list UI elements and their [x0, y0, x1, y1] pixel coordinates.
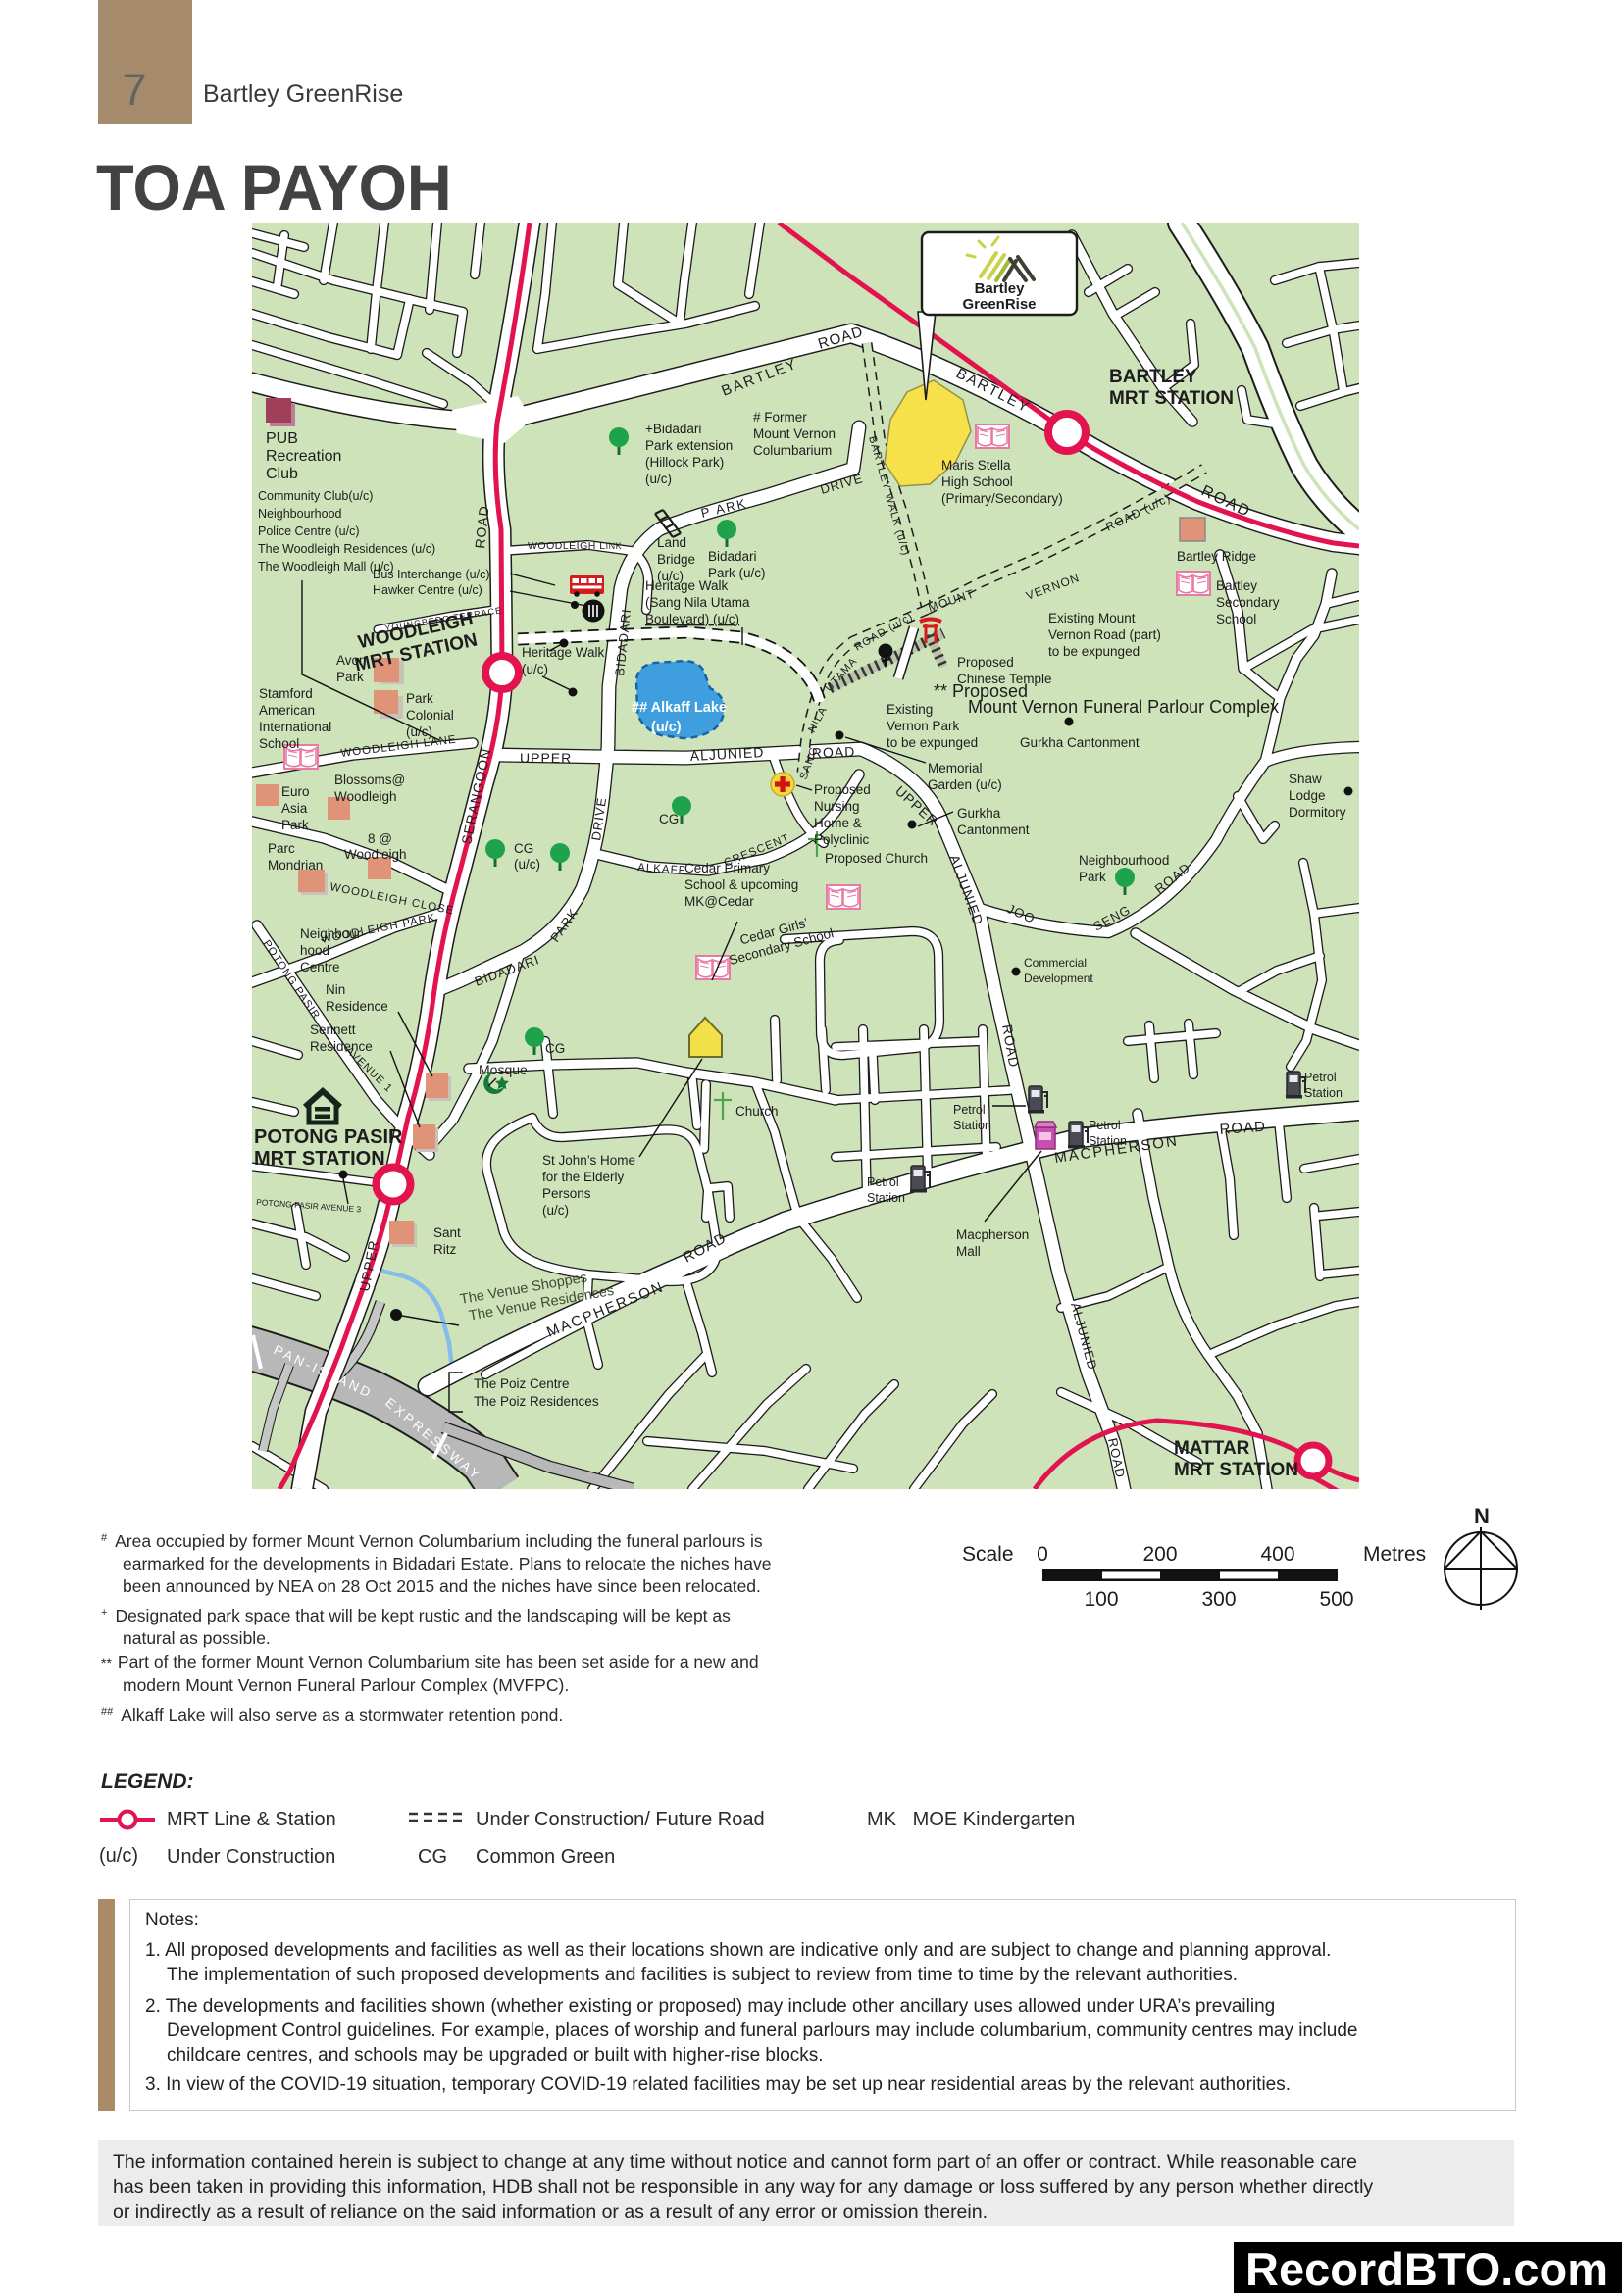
svg-text:Mount Vernon: Mount Vernon — [753, 426, 836, 441]
svg-text:Sennett: Sennett — [310, 1023, 356, 1037]
svg-text:N: N — [1474, 1504, 1490, 1528]
svg-text:Club: Club — [266, 466, 298, 482]
svg-text:Euro: Euro — [281, 784, 310, 799]
svg-text:Macpherson: Macpherson — [956, 1227, 1029, 1242]
svg-text:Dormitory: Dormitory — [1289, 805, 1346, 820]
svg-text:(Hillock Park): (Hillock Park) — [645, 455, 724, 470]
svg-text:MRT STATION: MRT STATION — [254, 1148, 385, 1170]
svg-text:Church: Church — [735, 1104, 779, 1119]
svg-text:PUB: PUB — [266, 430, 298, 447]
svg-text:Home &: Home & — [814, 816, 862, 830]
svg-text:Asia: Asia — [281, 801, 308, 816]
svg-text:Bridge: Bridge — [657, 552, 695, 567]
svg-text:Bartley: Bartley — [975, 280, 1026, 297]
svg-text:Columbarium: Columbarium — [753, 443, 832, 458]
svg-text:(u/c): (u/c) — [514, 857, 540, 872]
svg-text:Hawker Centre (u/c): Hawker Centre (u/c) — [373, 583, 482, 597]
svg-text:Boulevard) (u/c): Boulevard) (u/c) — [645, 612, 739, 626]
svg-text:Station: Station — [1304, 1086, 1343, 1100]
svg-text:Colonial: Colonial — [406, 708, 454, 723]
svg-text:Recreation: Recreation — [266, 448, 341, 465]
svg-text:Residence: Residence — [326, 999, 388, 1014]
svg-text:Development: Development — [1024, 972, 1093, 985]
svg-text:High School: High School — [941, 474, 1013, 489]
svg-text:Cedar Primary: Cedar Primary — [684, 861, 770, 875]
svg-text:400: 400 — [1260, 1543, 1294, 1566]
svg-text:WOODLEIGH LINK: WOODLEIGH LINK — [528, 540, 622, 552]
svg-text:MRT STATION: MRT STATION — [1109, 388, 1234, 409]
svg-text:Heritage Walk: Heritage Walk — [522, 645, 605, 660]
svg-text:Lodge: Lodge — [1289, 788, 1326, 803]
svg-text:+Bidadari: +Bidadari — [645, 422, 701, 436]
svg-text:Station: Station — [1089, 1134, 1127, 1148]
svg-text:Bidadari: Bidadari — [708, 549, 757, 564]
svg-text:Petrol: Petrol — [1089, 1119, 1121, 1132]
svg-text:Polyclinic: Polyclinic — [814, 832, 870, 847]
svg-text:CG: CG — [545, 1041, 565, 1056]
svg-text:to be expunged: to be expunged — [887, 735, 978, 750]
svg-text:200: 200 — [1142, 1543, 1177, 1566]
svg-text:The Woodleigh Residences (u/c): The Woodleigh Residences (u/c) — [258, 542, 435, 556]
svg-text:8 @: 8 @ — [368, 831, 392, 846]
svg-text:School: School — [1216, 612, 1256, 626]
svg-text:Vernon Road (part): Vernon Road (part) — [1048, 627, 1161, 642]
svg-text:Heritage Walk: Heritage Walk — [645, 578, 729, 593]
svg-text:St John’s Home: St John’s Home — [542, 1153, 635, 1168]
svg-text:MK@Cedar: MK@Cedar — [684, 894, 754, 909]
svg-text:100: 100 — [1084, 1588, 1118, 1611]
svg-text:Cantonment: Cantonment — [957, 823, 1030, 837]
svg-text:School & upcoming: School & upcoming — [684, 877, 798, 892]
svg-text:The Poiz Residences: The Poiz Residences — [474, 1394, 599, 1409]
svg-text:300: 300 — [1201, 1588, 1236, 1611]
svg-text:ROAD: ROAD — [812, 743, 856, 761]
svg-text:CG: CG — [514, 841, 533, 856]
svg-text:Shaw: Shaw — [1289, 772, 1322, 786]
svg-text:Avon: Avon — [336, 653, 367, 668]
svg-text:Mount Vernon Funeral Parlour C: Mount Vernon Funeral Parlour Complex — [968, 697, 1279, 717]
svg-text:American: American — [259, 703, 315, 718]
svg-text:Station: Station — [953, 1119, 991, 1132]
svg-text:Garden (u/c): Garden (u/c) — [928, 777, 1002, 792]
svg-text:Commercial: Commercial — [1024, 956, 1087, 970]
svg-text:MATTAR: MATTAR — [1174, 1438, 1250, 1459]
svg-text:Bus Interchange (u/c): Bus Interchange (u/c) — [373, 568, 490, 581]
svg-text:UPPER: UPPER — [520, 750, 572, 766]
svg-text:Ritz: Ritz — [433, 1242, 456, 1257]
svg-text:MRT STATION: MRT STATION — [1174, 1460, 1298, 1480]
svg-text:Nursing: Nursing — [814, 799, 860, 814]
svg-text:(u/c): (u/c) — [522, 662, 548, 676]
svg-text:Mosque: Mosque — [479, 1062, 528, 1077]
svg-text:Park: Park — [1079, 870, 1106, 884]
svg-text:Woodleigh: Woodleigh — [344, 847, 407, 862]
svg-text:Maris Stella: Maris Stella — [941, 458, 1011, 473]
svg-text:(u/c): (u/c) — [645, 472, 672, 486]
svg-text:Proposed: Proposed — [814, 782, 871, 797]
svg-text:BARTLEY: BARTLEY — [1109, 367, 1197, 387]
svg-text:Proposed Church: Proposed Church — [825, 851, 928, 866]
svg-text:CG: CG — [659, 812, 679, 826]
svg-text:Persons: Persons — [542, 1186, 591, 1201]
svg-text:Station: Station — [867, 1191, 905, 1205]
svg-text:Petrol: Petrol — [1304, 1071, 1337, 1084]
svg-text:(u/c): (u/c) — [651, 720, 682, 735]
svg-text:Blossoms@: Blossoms@ — [334, 773, 405, 787]
svg-text:Park: Park — [336, 670, 364, 684]
svg-text:Existing Mount: Existing Mount — [1048, 611, 1136, 625]
svg-text:Bartley Ridge: Bartley Ridge — [1177, 549, 1256, 564]
svg-text:POTONG PASIR: POTONG PASIR — [254, 1126, 403, 1148]
svg-text:The Poiz Centre: The Poiz Centre — [474, 1376, 570, 1391]
svg-text:500: 500 — [1319, 1588, 1353, 1611]
svg-text:Nin: Nin — [326, 982, 345, 997]
svg-text:# Former: # Former — [753, 410, 807, 424]
svg-text:hood: hood — [300, 943, 329, 958]
svg-text:(Primary/Secondary): (Primary/Secondary) — [941, 491, 1063, 506]
svg-text:Mall: Mall — [956, 1244, 981, 1259]
svg-text:(Sang Nila Utama: (Sang Nila Utama — [645, 595, 750, 610]
svg-text:Police Centre (u/c): Police Centre (u/c) — [258, 524, 360, 538]
svg-text:Park extension: Park extension — [645, 438, 733, 453]
svg-text:Memorial: Memorial — [928, 761, 983, 775]
svg-text:Park: Park — [406, 691, 433, 706]
svg-text:Bartley: Bartley — [1216, 578, 1257, 593]
svg-text:Sant: Sant — [433, 1225, 461, 1240]
svg-text:Metres: Metres — [1363, 1543, 1426, 1566]
svg-text:ROAD: ROAD — [1219, 1119, 1266, 1138]
svg-text:Stamford: Stamford — [259, 686, 313, 701]
svg-text:Park: Park — [281, 818, 309, 832]
svg-text:Land: Land — [657, 535, 686, 550]
svg-text:Neighbourhood: Neighbourhood — [258, 507, 342, 521]
svg-text:Community Club(u/c): Community Club(u/c) — [258, 489, 373, 503]
svg-text:Neighbour-: Neighbour- — [300, 926, 366, 941]
svg-text:International: International — [259, 720, 331, 734]
svg-text:Mondrian: Mondrian — [268, 858, 323, 873]
svg-text:for the Elderly: for the Elderly — [542, 1170, 625, 1184]
svg-text:Petrol: Petrol — [953, 1103, 986, 1117]
svg-text:0: 0 — [1037, 1543, 1048, 1566]
svg-text:Woodleigh: Woodleigh — [334, 789, 397, 804]
svg-text:Scale: Scale — [962, 1543, 1014, 1566]
svg-text:GreenRise: GreenRise — [962, 296, 1036, 313]
svg-text:## Alkaff Lake: ## Alkaff Lake — [632, 700, 727, 716]
svg-text:Petrol: Petrol — [867, 1175, 899, 1189]
svg-text:Vernon Park: Vernon Park — [887, 719, 960, 733]
svg-text:Secondary: Secondary — [1216, 595, 1280, 610]
svg-text:(u/c): (u/c) — [542, 1203, 569, 1218]
svg-text:Neighbourhood: Neighbourhood — [1079, 853, 1169, 868]
svg-text:Proposed: Proposed — [957, 655, 1014, 670]
svg-text:Parc: Parc — [268, 841, 295, 856]
svg-text:Residence: Residence — [310, 1039, 373, 1054]
svg-text:Gurkha: Gurkha — [957, 806, 1001, 821]
svg-text:to be expunged: to be expunged — [1048, 644, 1140, 659]
svg-text:Gurkha Cantonment: Gurkha Cantonment — [1020, 735, 1140, 750]
svg-text:Existing: Existing — [887, 702, 933, 717]
svg-text:School: School — [259, 736, 299, 751]
svg-text:Centre: Centre — [300, 960, 340, 974]
